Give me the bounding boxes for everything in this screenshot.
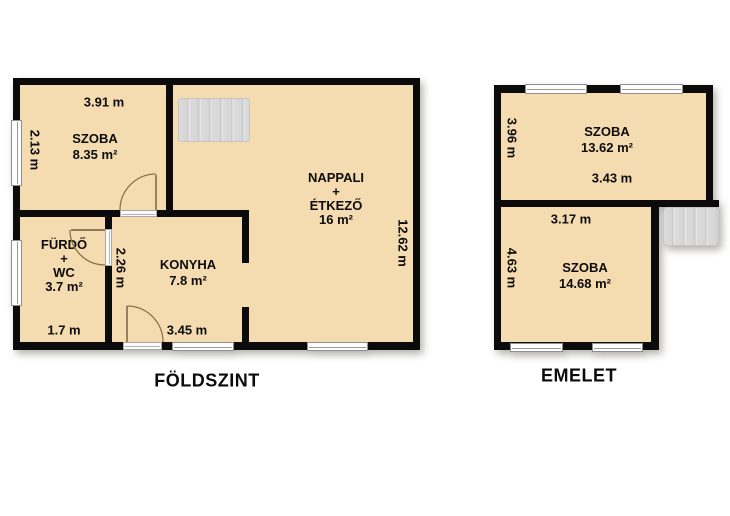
room-name: SZOBA [72,131,118,147]
room-label-szoba-bottom: SZOBA 14.68 m² [559,260,611,292]
dim-nappali-depth: 12.62 m [396,219,411,267]
upper-floor-title: EMELET [541,366,617,387]
dim-szoba-depth: 2.13 m [28,130,43,170]
dim-szoba-width: 3.91 m [84,95,124,110]
staircase [178,98,250,142]
room-area: 3.7 m² [41,280,87,294]
room-label-szoba: SZOBA 8.35 m² [72,131,118,163]
plus-sign: + [41,252,87,266]
dim-konyha-width: 3.45 m [167,323,207,338]
dim-szoba-bottom-depth: 4.63 m [505,248,520,288]
wall-divider [494,200,719,207]
window-nappali-bottom [307,342,368,351]
room-name: FÜRDŐ [41,238,87,252]
room-area: 14.68 m² [559,276,611,292]
window-top-left [525,84,587,94]
dim-szoba-top-depth: 3.96 m [505,118,520,158]
door-threshold-entrance [123,342,162,350]
wall-lower-left [494,200,501,350]
window-konyha-bottom [172,342,234,351]
wall-furdo-right-bottom [105,265,112,342]
room-label-konyha: KONYHA 7.8 m² [160,257,216,289]
plus-sign: + [308,185,364,199]
wall-furdo-right-top [105,217,112,229]
wall-szoba-right [166,85,173,217]
staircase [663,207,719,246]
window-bottom-left [510,343,563,352]
ground-floor-plan: 3.91 m 2.13 m SZOBA 8.35 m² NAPPALI + ÉT… [13,78,420,350]
room-label-furdo: FÜRDŐ + WC 3.7 m² [41,238,87,294]
dim-konyha-depth: 2.26 m [114,248,129,288]
wall-szoba-bottom-right [157,210,249,217]
ground-floor-title: FÖLDSZINT [154,371,260,392]
window-top-right [620,84,683,94]
wall-lower-right [651,200,659,350]
room-label-szoba-top: SZOBA 13.62 m² [581,124,633,156]
door-threshold-furdo [105,229,112,266]
room-label-nappali: NAPPALI + ÉTKEZŐ 16 m² [308,171,364,227]
window-szoba-left [11,120,22,186]
room-name: WC [41,266,87,280]
dim-furdo-width: 1.7 m [47,323,80,338]
room-name: NAPPALI [308,171,364,185]
room-area: 7.8 m² [160,273,216,289]
room-name: SZOBA [581,124,633,140]
room-area: 16 m² [308,213,364,227]
room-name: SZOBA [559,260,611,276]
room-name: KONYHA [160,257,216,273]
room-name: ÉTKEZŐ [308,199,364,213]
window-furdo-left [11,240,22,306]
window-bottom-right [592,343,643,352]
room-area: 8.35 m² [72,147,118,163]
floor-plan-image: 3.91 m 2.13 m SZOBA 8.35 m² NAPPALI + ÉT… [0,0,730,516]
wall-konyha-nappali-bottom [242,307,249,342]
door-threshold-szoba [120,210,157,217]
upper-floor-plan: 3.96 m SZOBA 13.62 m² 3.43 m 3.17 m 4.63… [494,85,720,350]
room-area: 13.62 m² [581,140,633,156]
dim-szoba-top-width: 3.43 m [592,171,632,186]
wall-konyha-nappali-top [242,210,249,263]
wall-szoba-bottom-left [20,210,120,217]
dim-szoba-bottom-width: 3.17 m [551,212,591,227]
